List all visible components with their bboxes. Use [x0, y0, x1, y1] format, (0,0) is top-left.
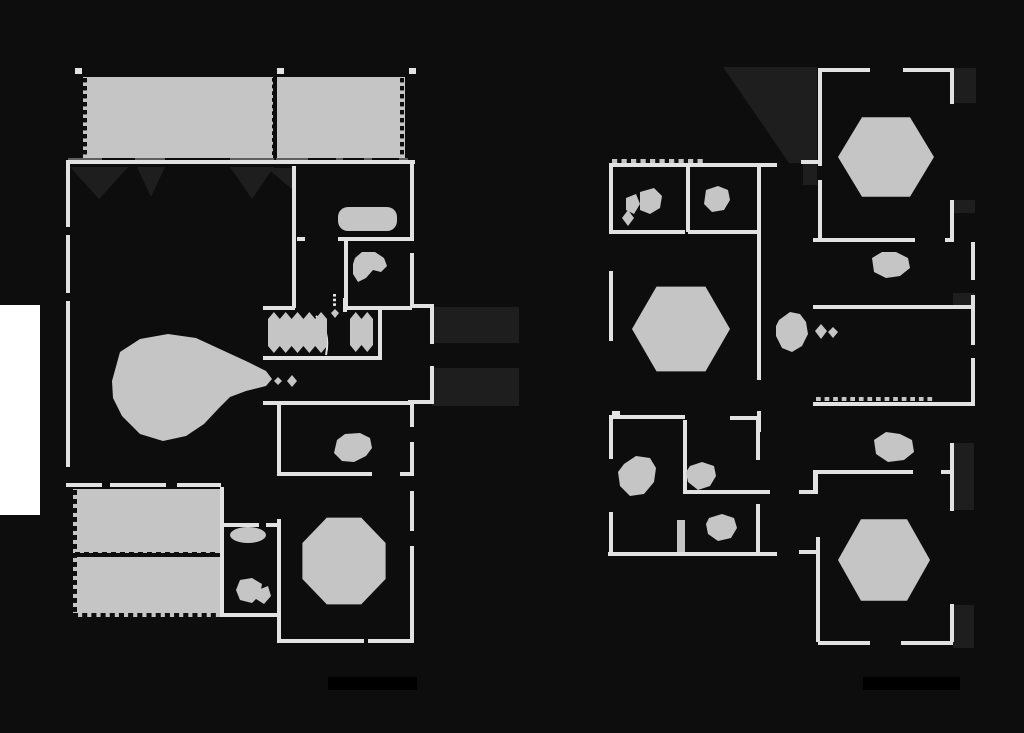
wall: [756, 504, 760, 552]
wall: [223, 613, 281, 617]
wall: [410, 491, 414, 531]
wall: [278, 639, 364, 643]
wall: [292, 166, 296, 308]
wall: [110, 483, 166, 487]
wall: [277, 519, 281, 643]
wall: [609, 415, 613, 459]
wall: [813, 305, 975, 309]
wall: [430, 366, 434, 404]
wall: [66, 235, 70, 293]
wall: [799, 550, 817, 554]
wall: [220, 487, 224, 617]
wall: [945, 238, 954, 242]
wall: [971, 358, 975, 404]
wall: [345, 306, 412, 310]
wall: [813, 402, 975, 406]
wall: [410, 442, 414, 476]
wall: [66, 160, 415, 164]
wall: [813, 238, 915, 242]
wall: [971, 242, 975, 280]
scale-bar-left-plan: [328, 677, 417, 690]
wall: [223, 523, 259, 527]
porch-patch: [953, 68, 976, 103]
wall: [297, 237, 305, 241]
garage-door-panel-left: [83, 77, 273, 158]
wall: [343, 298, 347, 312]
porch-patch: [432, 368, 519, 406]
bathtub: [338, 207, 397, 231]
deck-panel-upper: [73, 489, 220, 553]
wall: [177, 483, 221, 487]
wall: [609, 512, 613, 556]
wall: [609, 415, 685, 419]
wall: [368, 639, 414, 643]
porch-patch: [953, 200, 975, 213]
door-panel: [677, 520, 685, 552]
wall: [612, 411, 620, 415]
wall: [410, 546, 414, 642]
porch-patch: [432, 307, 519, 343]
floor-plan-page: [0, 0, 1024, 733]
wall: [950, 70, 954, 104]
ceiling-fan: [302, 518, 385, 605]
wall: [66, 301, 70, 467]
wall: [410, 405, 414, 427]
garage-door-panel-right: [277, 77, 405, 158]
wall: [686, 166, 690, 232]
wall: [263, 306, 295, 310]
wall: [756, 420, 760, 460]
wall: [757, 166, 761, 380]
white-strip-artifact: [0, 305, 40, 515]
wall: [818, 68, 822, 166]
wall: [66, 483, 102, 487]
wall: [277, 405, 281, 473]
wall: [66, 163, 70, 227]
wall-post: [409, 68, 416, 74]
wall: [971, 295, 975, 345]
wall-post: [75, 68, 82, 74]
wall: [410, 163, 414, 239]
wall: [950, 200, 954, 240]
wall: [818, 180, 822, 240]
deck-panel-lower: [73, 557, 220, 617]
wall: [609, 163, 777, 167]
wall: [430, 304, 434, 344]
floor-plan-drawing: [0, 0, 1024, 733]
wall: [688, 230, 759, 234]
roof-shadow: [803, 163, 817, 185]
wall: [813, 470, 818, 492]
wall: [730, 416, 759, 420]
wall: [818, 641, 870, 645]
door-threshold: [333, 294, 336, 306]
wall: [901, 641, 953, 645]
wall-post: [277, 68, 284, 74]
sink: [230, 527, 266, 543]
wall: [277, 472, 372, 476]
wall: [950, 443, 954, 511]
wall: [338, 237, 414, 241]
wall: [818, 68, 870, 72]
stair-treads: [268, 312, 327, 353]
wall: [263, 356, 382, 360]
scale-bar-right-plan: [863, 677, 960, 690]
wall: [609, 230, 685, 234]
wall: [683, 420, 687, 492]
wall: [801, 160, 818, 164]
wall: [266, 523, 281, 527]
wall: [609, 163, 613, 233]
wall: [903, 68, 954, 72]
porch-patch: [953, 443, 974, 510]
wall: [683, 490, 770, 494]
porch-patch: [953, 605, 974, 648]
wall: [263, 401, 414, 405]
wall: [813, 470, 913, 474]
wall: [950, 604, 954, 642]
wall: [410, 253, 414, 308]
wall: [608, 552, 777, 556]
wall: [609, 271, 613, 341]
wall: [378, 310, 382, 358]
